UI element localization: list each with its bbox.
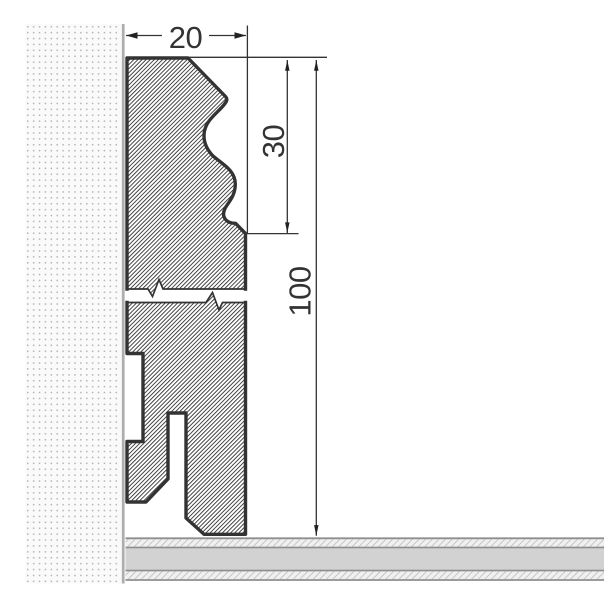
svg-text:30: 30 — [256, 125, 291, 159]
svg-text:100: 100 — [282, 266, 317, 316]
svg-text:20: 20 — [169, 20, 203, 55]
